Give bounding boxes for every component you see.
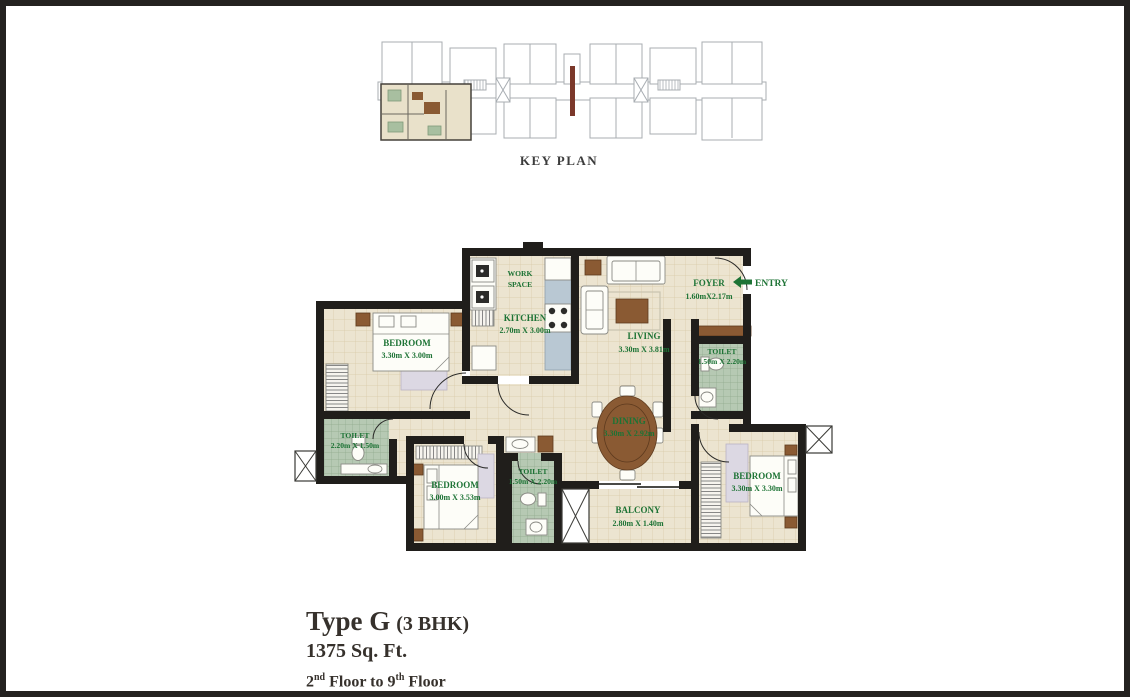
toilet-right-label: TOILET (708, 347, 737, 356)
unit-type: Type G (306, 606, 390, 636)
key-plan-stairs-icon (658, 80, 680, 90)
armchair-icon (581, 286, 608, 334)
key-plan-caption: KEY PLAN (469, 153, 649, 169)
bedroom1-dims: 3.30m X 3.00m (381, 351, 432, 360)
bedroom2-dims: 3.00m X 3.53m (429, 493, 480, 502)
wash-counter (506, 436, 553, 452)
shaft-icon (806, 426, 832, 453)
toilet-center-label: TOILET (519, 467, 548, 476)
unit-summary: Type G(3 BHK) 1375 Sq. Ft. 2nd Floor to … (306, 606, 469, 691)
toilet-right-dims: 1.50m X 2.20m (698, 357, 747, 366)
shaft-icon (562, 489, 589, 543)
bedroom1-label: BEDROOM (383, 338, 431, 348)
wardrobe-icon (326, 364, 348, 412)
kitchen-dims: 2.70m X 3.00m (499, 326, 550, 335)
toilet-left-label: TOILET (341, 431, 370, 440)
nightstand-icon (413, 529, 423, 541)
unit-floors: 2nd Floor to 9th Floor (306, 672, 469, 691)
workspace-label: SPACE (508, 280, 532, 289)
kitchen-rack-icon (472, 310, 494, 326)
foyer-dims: 1.60mX2.17m (685, 292, 732, 301)
unit-area: 1375 Sq. Ft. (306, 639, 469, 663)
bedroom2-label: BEDROOM (431, 480, 479, 490)
rug (478, 454, 494, 498)
washbasin-icon (526, 519, 547, 535)
washbasin-icon (699, 388, 716, 407)
unit-config: (3 BHK) (396, 613, 469, 635)
unit-type-title: Type G(3 BHK) (306, 606, 469, 639)
dining-label: DINING (612, 416, 646, 426)
key-plan (368, 34, 776, 150)
balcony-dims: 2.80m X 1.40m (612, 519, 663, 528)
bedroom3-label: BEDROOM (733, 471, 781, 481)
nightstand-icon (785, 517, 797, 528)
dining-dims: 3.30m X 2.92m (603, 429, 654, 438)
key-plan-highlighted-unit (381, 84, 471, 140)
wardrobe-icon (701, 462, 721, 538)
living-label: LIVING (627, 331, 660, 341)
sink-icon (472, 286, 494, 308)
sofa-icon (607, 256, 665, 284)
key-plan-center-bar (570, 66, 575, 116)
living-dims: 3.30m X 3.81m (618, 345, 669, 354)
balcony-label: BALCONY (615, 505, 661, 515)
kitchen-label: KITCHEN (504, 313, 547, 323)
entry-label: ENTRY (755, 279, 788, 289)
washbasin-icon (512, 440, 528, 449)
washbasin-icon (341, 464, 387, 474)
toilet-center-dims: 1.50m X 2.20m (509, 477, 558, 486)
unit-floor-plan: WORK SPACE KITCHEN 2.70m X 3.00m BEDROOM… (289, 242, 841, 572)
coffee-table-icon (616, 299, 648, 323)
wardrobe-icon (416, 446, 482, 459)
nightstand-icon (785, 445, 797, 455)
cupboard-icon (538, 436, 553, 452)
shaft-icon (295, 451, 316, 481)
nightstand-icon (356, 313, 370, 326)
sink-icon (472, 260, 494, 282)
side-table-icon (585, 260, 601, 275)
workspace-label: WORK (508, 269, 533, 278)
foyer-label: FOYER (693, 278, 725, 288)
toilet-left-dims: 2.20m X 1.50m (331, 441, 380, 450)
nightstand-icon (413, 464, 423, 475)
floor-plan-page: KEY PLAN (0, 0, 1130, 697)
bedroom3-dims: 3.30m X 3.30m (731, 484, 782, 493)
